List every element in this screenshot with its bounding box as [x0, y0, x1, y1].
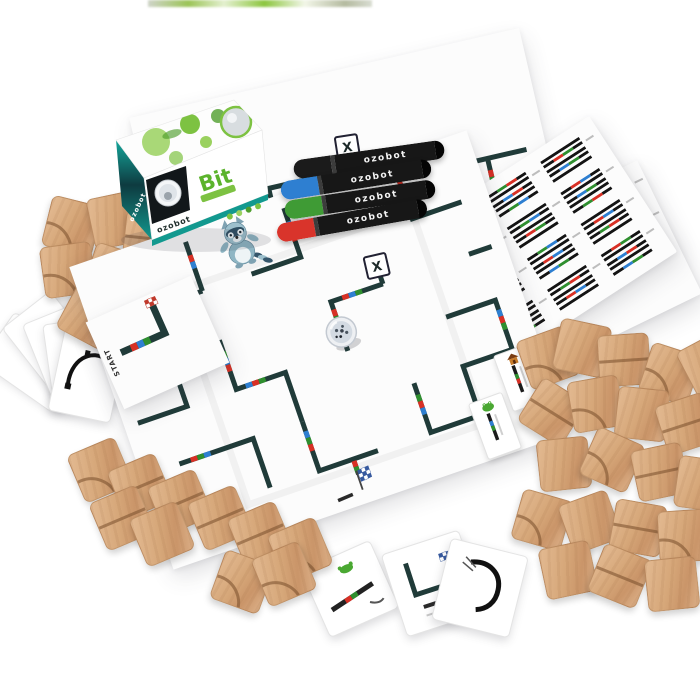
wooden-tile [535, 435, 592, 492]
wooden-tile [675, 329, 700, 399]
product-box: ozobot Bit ozobot [86, 90, 276, 259]
wooden-tile [586, 542, 654, 610]
x-marker-box-main: X [364, 253, 390, 279]
wooden-tile [629, 441, 691, 503]
wooden-tile [537, 539, 599, 601]
wooden-tile [608, 498, 668, 558]
wooden-tile [88, 484, 156, 552]
wooden-tile [613, 385, 670, 442]
marker-logo: ozobot [350, 169, 395, 186]
wooden-tile [66, 436, 134, 504]
wooden-tile [510, 488, 574, 552]
map-logo-mark [337, 493, 353, 502]
wooden-tile [637, 341, 700, 407]
wooden-tile [578, 426, 647, 495]
ozobot-robot [322, 313, 362, 355]
wooden-tile [643, 555, 700, 612]
wooden-tile [209, 549, 276, 616]
wooden-tile [566, 374, 626, 434]
marker-logo: ozobot [346, 209, 391, 226]
partial-box-top-edge [148, 0, 372, 7]
wooden-tile [557, 489, 624, 556]
wooden-tile [673, 455, 700, 514]
wooden-tile [656, 508, 700, 564]
product-photo-scene: X START [0, 0, 700, 700]
wooden-tile [653, 391, 700, 457]
